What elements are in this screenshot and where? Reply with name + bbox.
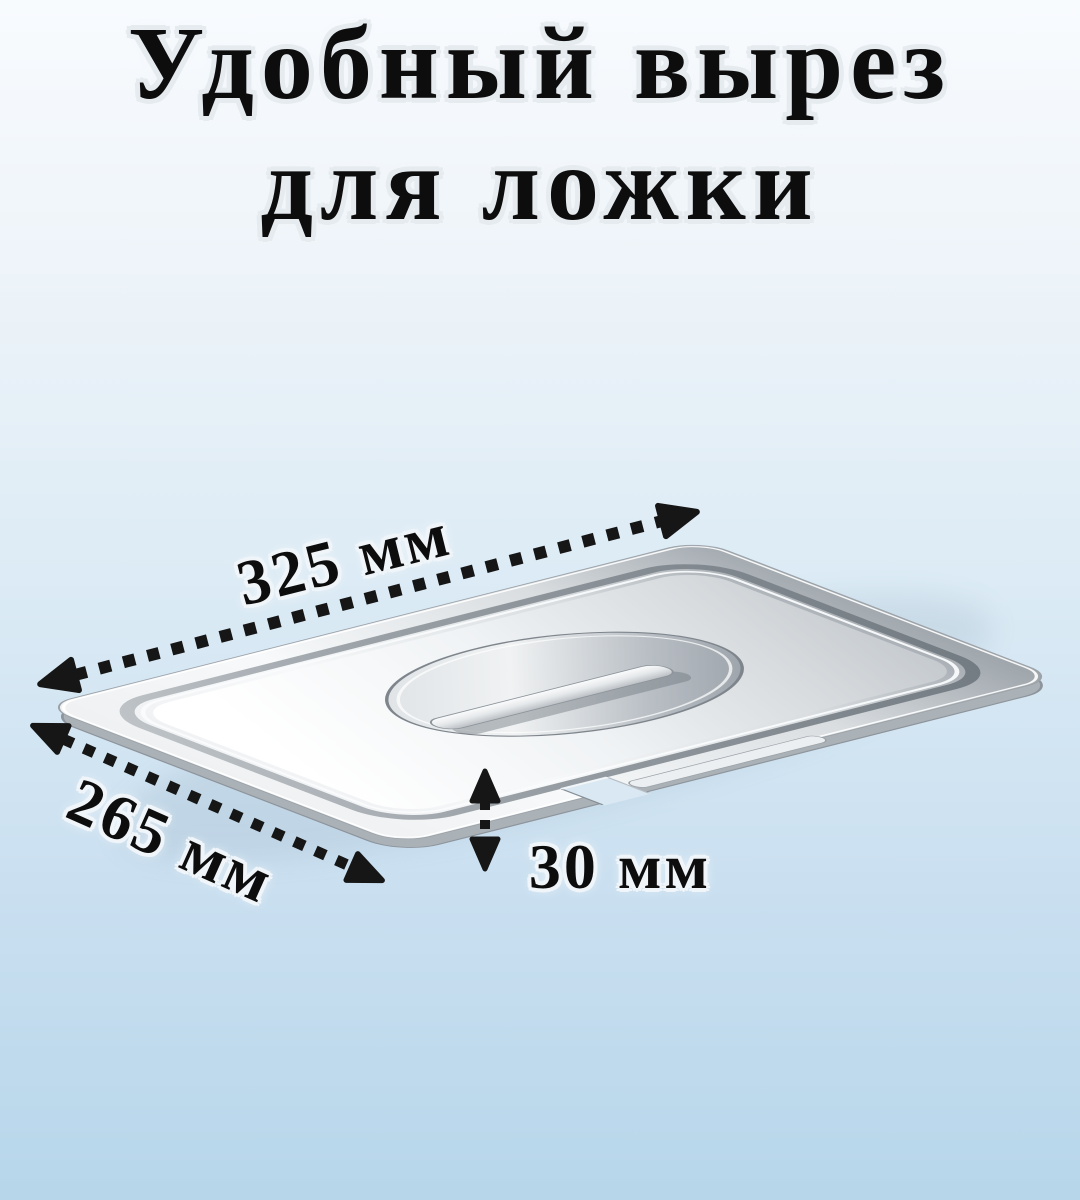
product-photo-scene (0, 0, 1080, 1200)
dimension-label-notch: 30 мм (529, 830, 711, 904)
product-image: Удобный вырез для ложки (0, 0, 1080, 1200)
